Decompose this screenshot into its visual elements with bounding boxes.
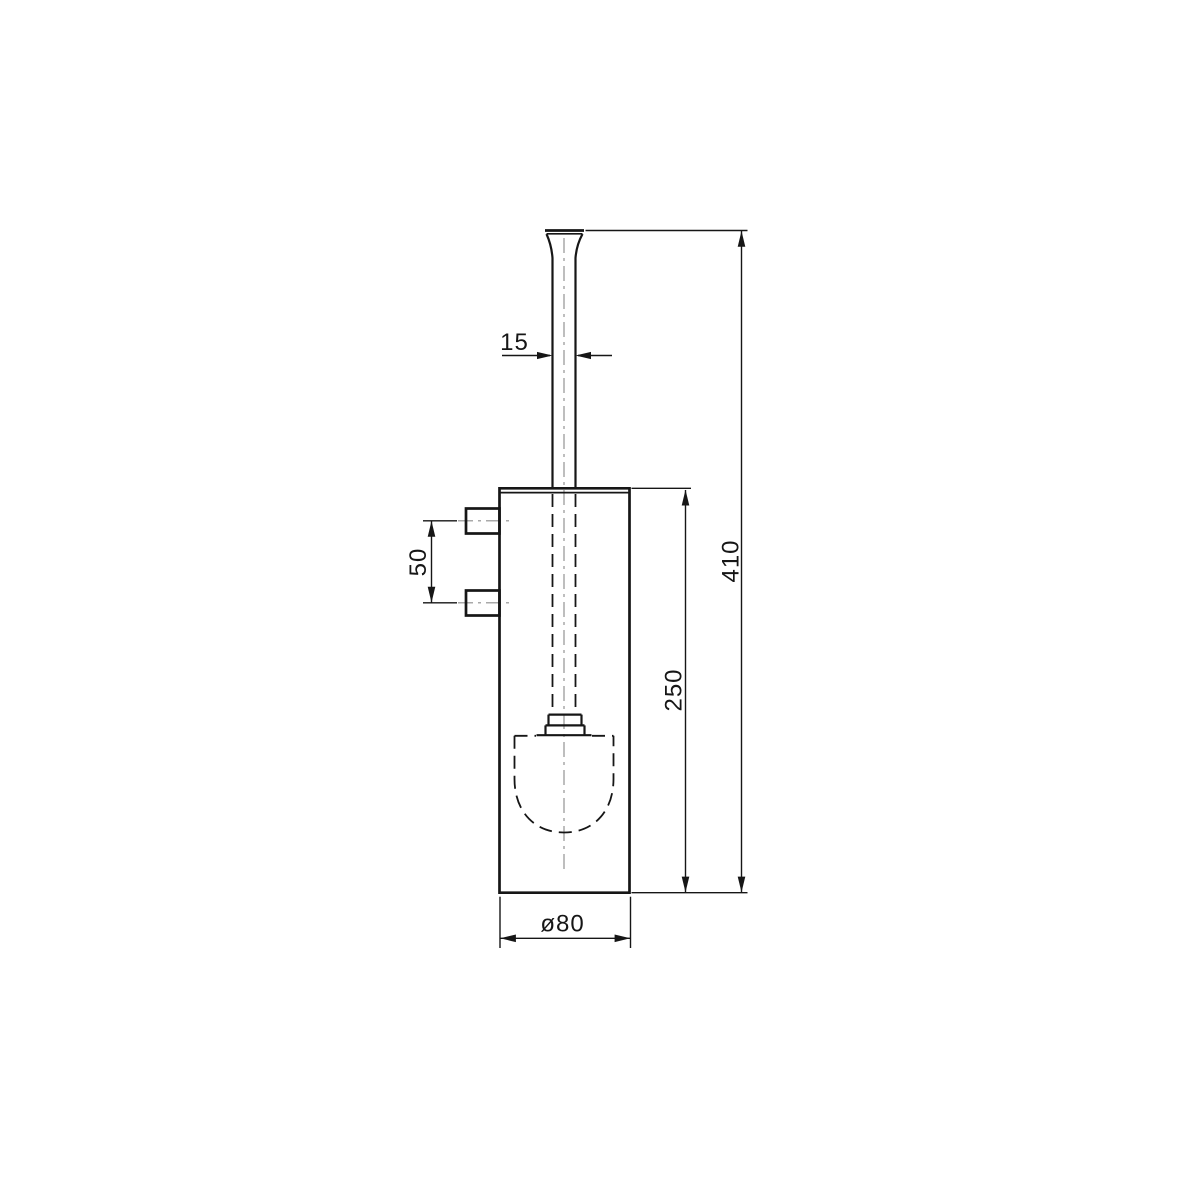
dim-overall-height-label: 410 (718, 539, 745, 582)
dim-handle-diameter-label: 15 (500, 329, 529, 356)
arrowhead (738, 231, 746, 247)
arrowhead (537, 352, 553, 359)
dim-body-diameter-label: ø80 (540, 911, 584, 938)
technical-drawing-canvas: 15 50 250 410 (0, 0, 1200, 1200)
wall-mount-pegs (466, 509, 500, 616)
dim-body-height: 250 (632, 488, 692, 892)
dim-mount-spacing-label: 50 (405, 548, 432, 577)
arrowhead (576, 352, 592, 359)
arrowhead (682, 490, 690, 506)
arrowhead (428, 587, 436, 603)
arrowhead (500, 935, 516, 943)
dim-body-height-label: 250 (661, 668, 688, 711)
arrowhead (615, 935, 631, 943)
dim-mount-spacing: 50 (405, 521, 457, 603)
arrowhead (738, 877, 746, 893)
dim-overall-height: 410 (586, 231, 748, 893)
arrowhead (682, 877, 690, 893)
drawing-page: 15 50 250 410 (0, 0, 1200, 1200)
handle-right-edge (576, 234, 583, 488)
arrowhead (428, 521, 436, 537)
dim-body-diameter: ø80 (500, 897, 631, 948)
handle-left-edge (547, 234, 553, 488)
dim-handle-diameter: 15 (500, 329, 612, 359)
